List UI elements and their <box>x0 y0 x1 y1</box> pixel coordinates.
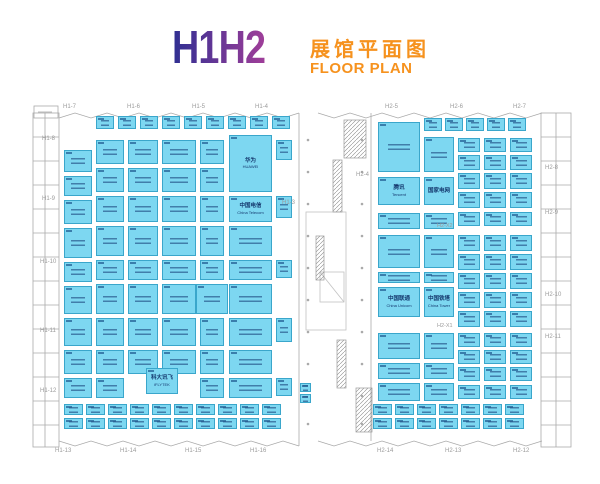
bottom-edge-left <box>59 441 299 446</box>
booth <box>272 116 290 129</box>
gate-label-h1-5: H1-5 <box>192 104 205 110</box>
booth <box>108 404 127 415</box>
booth <box>424 235 454 268</box>
gate-label-h2-6: H2-6 <box>450 104 463 110</box>
booth <box>424 333 454 359</box>
booth <box>510 155 532 170</box>
booth <box>487 118 505 131</box>
booth <box>162 168 196 192</box>
booth <box>510 385 532 399</box>
booth <box>276 140 292 160</box>
booth <box>96 318 124 346</box>
booth <box>118 116 136 129</box>
booth <box>300 394 311 403</box>
escalator-1 <box>333 160 342 212</box>
booth-name-zh: 科大讯飞 <box>151 375 173 382</box>
booth <box>417 418 436 429</box>
floorplan-page: H1H2 展馆平面图 FLOOR PLAN <box>0 0 600 484</box>
booth <box>378 213 420 229</box>
booth <box>240 404 259 415</box>
escalator-2 <box>316 236 324 280</box>
booth <box>458 254 480 270</box>
booth <box>228 116 246 129</box>
booth <box>64 176 92 196</box>
booth <box>510 273 532 289</box>
bottom-edge-right <box>318 441 542 446</box>
floor-plan: 科大讯飞iFLYTEK华为HUAWEI中国电信China Telecom腾讯Te… <box>0 0 600 484</box>
gate-label-h1-15: H1-15 <box>185 448 201 454</box>
booth <box>64 150 92 172</box>
booth <box>373 418 392 429</box>
stairs-bottom <box>356 388 372 432</box>
booth <box>240 418 259 429</box>
gate-label-h2-8: H2-8 <box>545 165 558 171</box>
booth <box>466 118 484 131</box>
booth <box>96 350 124 374</box>
booth <box>128 260 158 280</box>
booth <box>484 311 506 327</box>
booth <box>510 192 532 208</box>
booth <box>458 235 480 251</box>
booth <box>200 350 224 374</box>
booth <box>262 404 281 415</box>
booth <box>483 418 502 429</box>
booth <box>196 418 215 429</box>
booth <box>378 383 420 401</box>
gate-label-h1-4: H1-4 <box>255 104 268 110</box>
booth <box>510 173 532 189</box>
booth <box>424 272 454 283</box>
booth <box>229 350 272 374</box>
booth <box>162 260 196 280</box>
booth <box>424 137 454 172</box>
booth-china-telecom: 中国电信China Telecom <box>229 196 272 222</box>
booth <box>439 404 458 415</box>
booth <box>128 318 158 346</box>
booth <box>200 140 224 164</box>
booth <box>96 284 124 314</box>
booth <box>229 226 272 256</box>
booth <box>206 116 224 129</box>
booth <box>484 333 506 347</box>
booth <box>152 404 171 415</box>
booth <box>196 284 228 314</box>
booth <box>458 385 480 399</box>
booth <box>510 311 532 327</box>
booth <box>378 122 420 172</box>
booth-name-zh: 中国联通 <box>388 296 410 303</box>
booth <box>505 404 524 415</box>
corridor-core <box>306 212 346 330</box>
booth <box>96 116 114 129</box>
booth-name-zh: 腾讯 <box>393 185 404 192</box>
booth <box>484 138 506 152</box>
booth <box>174 418 193 429</box>
booth-huawei: 华为HUAWEI <box>229 135 272 192</box>
booth <box>300 383 311 392</box>
booth <box>128 168 158 192</box>
booth <box>162 140 196 164</box>
booth <box>378 363 420 379</box>
booth <box>458 138 480 152</box>
gate-label-h1-10: H1-10 <box>40 259 56 265</box>
booth <box>250 116 268 129</box>
booth-name-en: Tencent <box>392 192 406 197</box>
booth-cn: 国家电网 <box>424 177 454 205</box>
booth <box>64 418 83 429</box>
gate-label-h1-7: H1-7 <box>63 104 76 110</box>
escalator-3 <box>337 340 346 388</box>
gate-label-h2-14: H2-14 <box>377 448 393 454</box>
booth-name-zh: 国家电网 <box>428 188 450 195</box>
booth <box>424 118 442 131</box>
gate-label-h2-9: H2-9 <box>545 210 558 216</box>
booth <box>128 196 158 222</box>
booth <box>229 260 272 280</box>
booth <box>262 418 281 429</box>
booth <box>64 350 92 374</box>
booth <box>86 404 105 415</box>
booth <box>229 318 272 346</box>
booth <box>484 212 506 226</box>
gate-label-h1-6: H1-6 <box>127 104 140 110</box>
booth <box>484 367 506 381</box>
booth <box>64 200 92 224</box>
booth <box>276 378 292 396</box>
booth <box>218 418 237 429</box>
booth <box>439 418 458 429</box>
booth <box>510 367 532 381</box>
booth <box>200 260 224 280</box>
gate-label-h2-13: H2-13 <box>445 448 461 454</box>
booth <box>445 118 463 131</box>
booth <box>200 378 224 398</box>
gate-label-h1-3: H1-3 <box>282 200 295 206</box>
booth <box>458 350 480 364</box>
booth <box>505 418 524 429</box>
booth <box>162 226 196 256</box>
booth <box>162 116 180 129</box>
booth <box>484 155 506 170</box>
gate-label-h1-14: H1-14 <box>120 448 136 454</box>
booth <box>424 363 454 379</box>
booth <box>162 284 196 314</box>
booth <box>484 350 506 364</box>
gate-label-h1-11: H1-11 <box>40 328 56 334</box>
booth <box>229 284 272 314</box>
booth <box>229 378 272 398</box>
gate-label-h1-9: H1-9 <box>42 196 55 202</box>
booth <box>64 318 92 346</box>
gate-label-h2-7: H2-7 <box>513 104 526 110</box>
booth <box>373 404 392 415</box>
booth <box>128 226 158 256</box>
booth <box>196 404 215 415</box>
booth <box>162 318 196 346</box>
booth <box>510 254 532 270</box>
booth <box>200 226 224 256</box>
booth <box>64 262 92 282</box>
booth <box>484 235 506 251</box>
gate-label-h2-11: H2-11 <box>545 334 561 340</box>
booth <box>458 273 480 289</box>
booth <box>510 138 532 152</box>
gate-label-h1-12: H1-12 <box>40 388 56 394</box>
booth <box>484 273 506 289</box>
gate-label-h1-13: H1-13 <box>55 448 71 454</box>
booth <box>64 404 83 415</box>
booth-china-unicom: 中国联通China Unicom <box>378 287 420 317</box>
gate-label-h2-10: H2-10 <box>545 292 561 298</box>
aisle-label-h2-x1: H2-X1 <box>437 324 453 330</box>
booth <box>458 333 480 347</box>
gate-label-h1-8: H1-8 <box>42 136 55 142</box>
booth <box>458 192 480 208</box>
booth <box>484 173 506 189</box>
booth <box>484 292 506 308</box>
booth <box>458 367 480 381</box>
booth <box>508 118 526 131</box>
booth <box>96 168 124 192</box>
booth <box>218 404 237 415</box>
booth-name-en: China Telecom <box>237 210 263 215</box>
booth-china-tower: 中国铁塔China Tower <box>424 287 454 317</box>
booth <box>96 378 124 398</box>
booth <box>128 140 158 164</box>
booth <box>184 116 202 129</box>
booth <box>96 196 124 222</box>
booth <box>200 196 224 222</box>
booth <box>424 383 454 401</box>
booth <box>162 196 196 222</box>
booth <box>458 212 480 226</box>
booth <box>130 418 149 429</box>
booth <box>128 284 158 314</box>
booth <box>378 235 420 268</box>
gate-label-h1-16: H1-16 <box>250 448 266 454</box>
left-wing-rooms <box>33 106 59 447</box>
booth <box>510 333 532 347</box>
booth <box>140 116 158 129</box>
booth-name-en: China Tower <box>428 303 450 308</box>
booth <box>458 311 480 327</box>
booth <box>200 168 224 192</box>
booth <box>64 378 92 398</box>
booth <box>510 350 532 364</box>
booth <box>417 404 436 415</box>
booth <box>86 418 105 429</box>
booth <box>484 385 506 399</box>
booth-name-en: iFLYTEK <box>154 382 170 387</box>
booth <box>484 192 506 208</box>
booth <box>458 292 480 308</box>
booth <box>510 212 532 226</box>
booth-name-zh: 华为 <box>245 158 256 165</box>
booth-name-en: HUAWEI <box>243 164 259 169</box>
booth <box>64 228 92 258</box>
booth <box>96 226 124 256</box>
booth-name-en: China Unicom <box>386 303 411 308</box>
booth <box>510 292 532 308</box>
booth <box>378 333 420 359</box>
booth <box>96 140 124 164</box>
booth <box>510 235 532 251</box>
gate-label-h2-4: H2-4 <box>356 172 369 178</box>
booth <box>64 286 92 314</box>
booth <box>130 404 149 415</box>
booth <box>152 418 171 429</box>
booth <box>461 418 480 429</box>
booth <box>458 155 480 170</box>
booth <box>461 404 480 415</box>
booth <box>200 318 224 346</box>
booth-iflytek: 科大讯飞iFLYTEK <box>146 368 178 394</box>
booth <box>395 418 414 429</box>
right-wing-rooms <box>541 113 571 447</box>
booth <box>108 418 127 429</box>
booth-name-zh: 中国电信 <box>239 203 261 210</box>
booth-name-zh: 中国铁塔 <box>428 296 450 303</box>
aisle-label-h2-x2: H2-X2 <box>437 224 453 230</box>
booth <box>483 404 502 415</box>
booth <box>96 260 124 280</box>
booth <box>174 404 193 415</box>
booth <box>395 404 414 415</box>
booth-tencent: 腾讯Tencent <box>378 177 420 205</box>
booth <box>378 272 420 283</box>
booth <box>276 260 292 278</box>
booth <box>484 254 506 270</box>
gate-label-h2-5: H2-5 <box>385 104 398 110</box>
booth <box>458 173 480 189</box>
booth <box>276 318 292 342</box>
gate-label-h2-12: H2-12 <box>513 448 529 454</box>
